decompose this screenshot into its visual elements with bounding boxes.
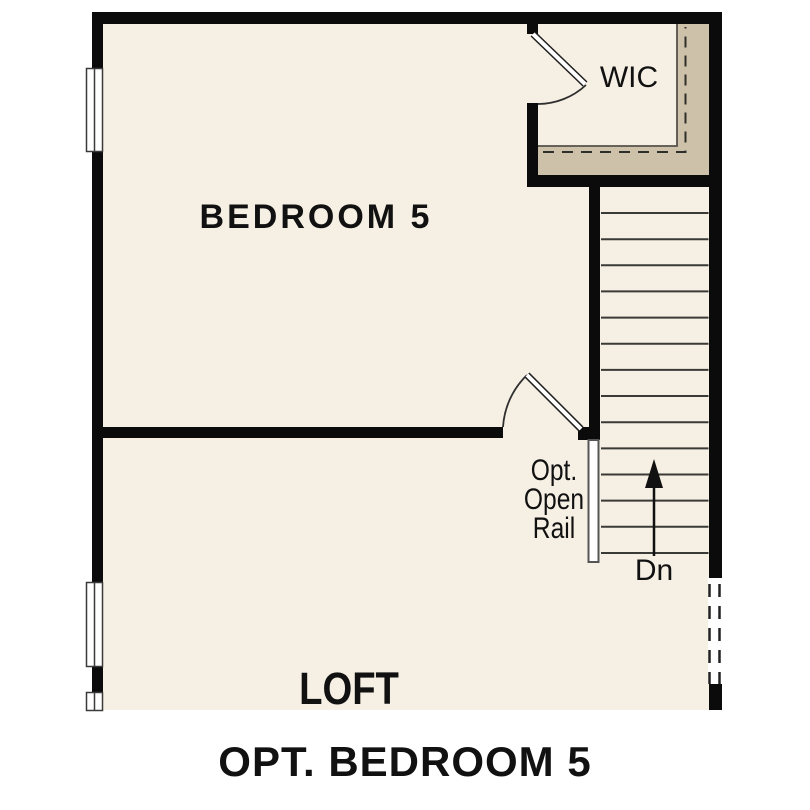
loft-door-swing-arc bbox=[503, 375, 527, 427]
plan-title: OPT. BEDROOM 5 bbox=[0, 740, 810, 784]
window-loft-1 bbox=[87, 583, 103, 667]
stairs-direction-label: Dn bbox=[614, 556, 694, 586]
window-bedroom bbox=[87, 69, 103, 152]
room-label-loft: LOFT bbox=[264, 666, 434, 711]
floor-plan: BEDROOM 5 WIC LOFT Opt. Open Rail Dn bbox=[0, 0, 810, 810]
room-label-wic: WIC bbox=[569, 63, 689, 93]
room-label-bedroom: BEDROOM 5 bbox=[136, 200, 496, 234]
loft-door-leaf-fill bbox=[527, 375, 581, 429]
optional-wall-dashed bbox=[708, 579, 722, 685]
window-loft-2 bbox=[87, 693, 103, 711]
open-rail-note: Opt. Open Rail bbox=[505, 456, 603, 543]
